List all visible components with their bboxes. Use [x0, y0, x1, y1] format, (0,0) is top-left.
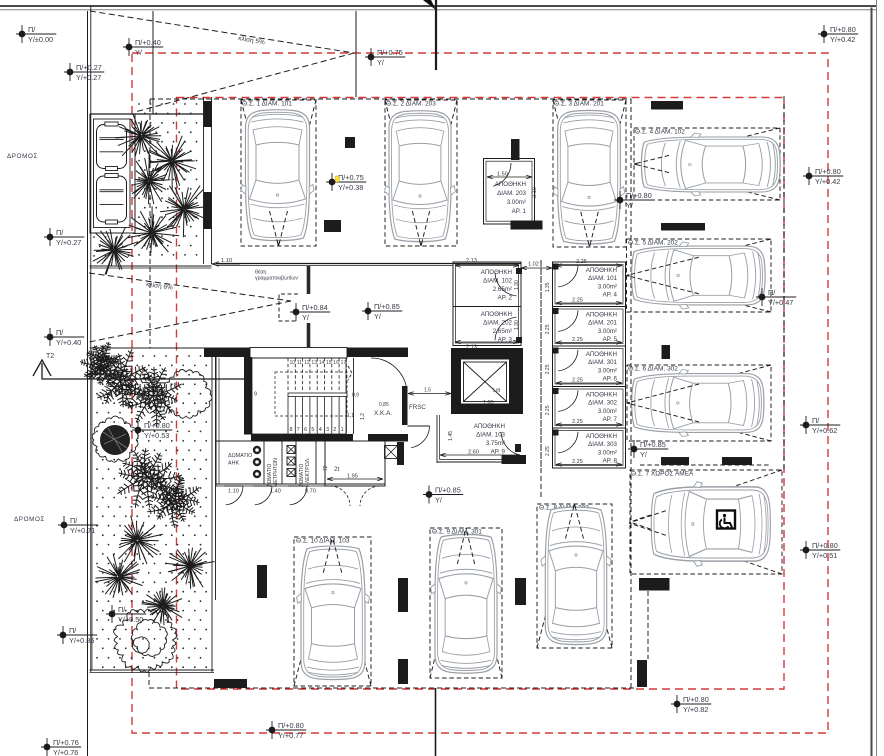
svg-text:ΑΠΟΘΗΚΗ: ΑΠΟΘΗΚΗ — [481, 269, 512, 276]
svg-text:ΑΡ. 2: ΑΡ. 2 — [498, 295, 513, 302]
svg-text:2t: 2t — [334, 466, 340, 473]
svg-text:ΔΙΑΜ. 203: ΔΙΑΜ. 203 — [497, 190, 526, 197]
svg-text:ΔΙΑΜ. 101: ΔΙΑΜ. 101 — [588, 275, 617, 282]
svg-text:1,2: 1,2 — [360, 413, 366, 420]
svg-text:0,9: 0,9 — [352, 393, 359, 399]
svg-text:1.30: 1.30 — [514, 280, 520, 290]
svg-text:Π/+0.80: Π/+0.80 — [683, 695, 709, 704]
svg-text:ΔΙΑΜ. 103: ΔΙΑΜ. 103 — [476, 432, 505, 439]
svg-text:2.25: 2.25 — [545, 405, 551, 415]
svg-text:2: 2 — [333, 427, 336, 433]
svg-text:11: 11 — [297, 360, 302, 366]
svg-text:2.25: 2.25 — [572, 378, 583, 384]
svg-text:1.45: 1.45 — [448, 431, 454, 441]
svg-text:Π/+0.80: Π/+0.80 — [144, 421, 170, 430]
svg-text:Y/+0.42: Y/+0.42 — [830, 35, 855, 44]
svg-text:Θ.Σ. 6 ΔΙΑΜ. 302: Θ.Σ. 6 ΔΙΑΜ. 302 — [628, 366, 678, 373]
svg-text:ΑΡ. 8: ΑΡ. 8 — [603, 458, 618, 465]
svg-text:ΑΗΚ: ΑΗΚ — [228, 461, 239, 467]
svg-text:Θ.Σ. 4 ΔΙΑΜ. 102: Θ.Σ. 4 ΔΙΑΜ. 102 — [635, 129, 685, 136]
svg-text:2.25: 2.25 — [572, 337, 583, 343]
svg-text:ΔΙΑΜ. 201: ΔΙΑΜ. 201 — [588, 320, 617, 327]
svg-text:ΗΛΕΚΤΡΟΛ.: ΗΛΕΚΤΡΟΛ. — [305, 457, 311, 487]
svg-text:Lift: Lift — [493, 388, 501, 394]
svg-text:Π/+0.80: Π/+0.80 — [626, 191, 652, 200]
svg-text:Π/+0.85: Π/+0.85 — [435, 485, 461, 494]
svg-text:ΑΡ. 6: ΑΡ. 6 — [603, 376, 618, 383]
svg-text:Y/: Y/ — [640, 450, 648, 459]
svg-text:3: 3 — [326, 427, 329, 433]
svg-text:4: 4 — [319, 427, 322, 433]
svg-text:X.K.A.: X.K.A. — [374, 410, 392, 417]
svg-text:ΑΠΟΘΗΚΗ: ΑΠΟΘΗΚΗ — [586, 392, 617, 399]
svg-text:5: 5 — [311, 427, 314, 433]
svg-text:2.13: 2.13 — [466, 345, 477, 351]
svg-text:Y/+0.42: Y/+0.42 — [815, 177, 840, 186]
svg-text:Π/+0.80: Π/+0.80 — [278, 721, 304, 730]
svg-text:Π/+0.40: Π/+0.40 — [135, 38, 161, 47]
svg-text:Y/+0.77: Y/+0.77 — [278, 731, 303, 740]
svg-text:ΑΠΟΘΗΚΗ: ΑΠΟΘΗΚΗ — [474, 423, 505, 430]
svg-text:Y/+0.53: Y/+0.53 — [144, 431, 169, 440]
svg-text:Θ.Σ. 5 ΔΙΑΜ. 202: Θ.Σ. 5 ΔΙΑΜ. 202 — [628, 240, 678, 247]
svg-text:3.00m²: 3.00m² — [598, 328, 617, 335]
svg-text:Y/+0.47: Y/+0.47 — [768, 298, 793, 307]
svg-text:3.00m²: 3.00m² — [598, 283, 617, 290]
svg-text:ΑΠΟΘΗΚΗ: ΑΠΟΘΗΚΗ — [586, 267, 617, 274]
svg-text:ΑΡ. 5: ΑΡ. 5 — [603, 336, 618, 343]
svg-text:ΑΠΟΘΗΚΗ: ΑΠΟΘΗΚΗ — [481, 311, 512, 318]
svg-text:Π/+0.80: Π/+0.80 — [815, 167, 841, 176]
svg-text:1.50: 1.50 — [497, 172, 508, 178]
svg-text:3.00m²: 3.00m² — [598, 449, 617, 456]
svg-text:Π/+0.75: Π/+0.75 — [377, 48, 403, 57]
svg-text:2.25: 2.25 — [545, 324, 551, 334]
svg-text:3.00m²: 3.00m² — [598, 408, 617, 415]
svg-text:0,85: 0,85 — [379, 402, 389, 408]
svg-text:Π/+0.75: Π/+0.75 — [338, 173, 364, 182]
svg-text:ΔΙΑΜ. 301: ΔΙΑΜ. 301 — [588, 359, 617, 366]
svg-text:2.60: 2.60 — [468, 450, 479, 456]
svg-text:3.75m²: 3.75m² — [486, 440, 505, 447]
svg-text:1,5: 1,5 — [424, 388, 431, 394]
svg-text:Y/+0.62: Y/+0.62 — [812, 426, 837, 435]
svg-text:Π/+0.27: Π/+0.27 — [76, 63, 102, 72]
svg-text:Π/+0.84: Π/+0.84 — [302, 303, 328, 312]
svg-text:Θ.Σ. 3 ΔΙΑΜ. 201: Θ.Σ. 3 ΔΙΑΜ. 201 — [554, 101, 604, 108]
svg-text:1.95: 1.95 — [347, 474, 358, 480]
svg-text:13: 13 — [311, 360, 317, 366]
svg-text:ΑΠΟΘΗΚΗ: ΑΠΟΘΗΚΗ — [586, 312, 617, 319]
svg-text:ΑΡ. 9: ΑΡ. 9 — [491, 449, 506, 456]
svg-text:2.25: 2.25 — [572, 419, 583, 425]
svg-text:ΑΡ. 3: ΑΡ. 3 — [498, 337, 513, 344]
svg-text:Y/+0.38: Y/+0.38 — [338, 183, 363, 192]
svg-text:14: 14 — [319, 360, 325, 366]
svg-text:2.25: 2.25 — [576, 259, 587, 265]
svg-text:Y/+0.76: Y/+0.76 — [53, 748, 78, 756]
svg-text:7: 7 — [297, 427, 300, 433]
svg-text:Y/: Y/ — [302, 313, 310, 322]
svg-text:ΔΙΑΜ. 202: ΔΙΑΜ. 202 — [483, 320, 512, 327]
svg-text:Y/: Y/ — [377, 58, 385, 67]
svg-text:ΔΙΑΜ. 302: ΔΙΑΜ. 302 — [588, 400, 617, 407]
svg-text:Y/+0.71: Y/+0.71 — [70, 526, 95, 535]
svg-text:8: 8 — [290, 427, 293, 433]
svg-text:Π/: Π/ — [812, 416, 820, 425]
svg-text:ΑΡ. 1: ΑΡ. 1 — [512, 208, 527, 215]
svg-text:9: 9 — [254, 392, 257, 398]
svg-text:ΑΡ. 7: ΑΡ. 7 — [603, 416, 618, 423]
svg-text:T2: T2 — [46, 353, 54, 360]
svg-text:Π/: Π/ — [768, 288, 776, 297]
svg-text:16: 16 — [333, 360, 339, 366]
svg-text:6: 6 — [304, 427, 307, 433]
svg-text:12: 12 — [304, 360, 310, 366]
svg-text:Π/: Π/ — [28, 25, 36, 34]
svg-text:Π/: Π/ — [69, 626, 77, 635]
svg-text:Θ.Σ. 1 ΔΙΑΜ. 101: Θ.Σ. 1 ΔΙΑΜ. 101 — [242, 101, 292, 108]
svg-text:γραμματοκιβωτίων: γραμματοκιβωτίων — [255, 276, 298, 282]
svg-text:ΑΠΟΘΗΚΗ: ΑΠΟΘΗΚΗ — [586, 351, 617, 358]
svg-text:Π/+0.76: Π/+0.76 — [53, 738, 79, 747]
svg-text:2.25: 2.25 — [545, 364, 551, 374]
svg-text:Y/: Y/ — [626, 201, 634, 210]
svg-text:ΔΙΑΜ. 303: ΔΙΑΜ. 303 — [588, 441, 617, 448]
svg-text:Π/+0.85: Π/+0.85 — [640, 440, 666, 449]
svg-text:Π/: Π/ — [56, 328, 64, 337]
svg-text:Y/±0.00: Y/±0.00 — [28, 35, 53, 44]
svg-text:Θ.Σ. 2 ΔΙΑΜ. 203: Θ.Σ. 2 ΔΙΑΜ. 203 — [386, 101, 436, 108]
svg-text:1,1: 1,1 — [347, 413, 354, 419]
svg-text:Y/+0.40: Y/+0.40 — [56, 338, 81, 347]
svg-text:Y/: Y/ — [135, 48, 143, 57]
svg-text:1.35: 1.35 — [545, 282, 551, 292]
svg-text:Y/+0.27: Y/+0.27 — [76, 73, 101, 82]
svg-text:Π/: Π/ — [118, 605, 126, 614]
svg-text:17: 17 — [341, 360, 347, 366]
svg-text:ΜΕΤΡΗΤΩΝ: ΜΕΤΡΗΤΩΝ — [273, 458, 279, 487]
svg-text:1.80: 1.80 — [483, 400, 494, 406]
svg-text:1: 1 — [341, 427, 344, 433]
svg-text:2.25: 2.25 — [572, 459, 583, 465]
svg-text:1.30: 1.30 — [514, 320, 520, 330]
svg-text:Y/: Y/ — [435, 496, 443, 505]
svg-text:ΔΡΟΜΟΣ: ΔΡΟΜΟΣ — [14, 516, 45, 523]
svg-text:ΑΠΟΘΗΚΗ: ΑΠΟΘΗΚΗ — [586, 433, 617, 440]
svg-text:ΑΠΟΘΗΚΗ: ΑΠΟΘΗΚΗ — [495, 181, 526, 188]
svg-text:Y/+0.82: Y/+0.82 — [683, 705, 708, 714]
svg-text:1.10: 1.10 — [228, 489, 239, 495]
svg-text:Y/+0.50: Y/+0.50 — [118, 615, 143, 624]
svg-text:Θ.Σ. 10 ΔΙΑΜ. 103: Θ.Σ. 10 ΔΙΑΜ. 103 — [296, 538, 350, 545]
svg-text:Y/+0.86: Y/+0.86 — [69, 636, 94, 645]
svg-text:2.10: 2.10 — [532, 187, 538, 198]
svg-text:15: 15 — [326, 360, 332, 366]
svg-text:Y/+0.27: Y/+0.27 — [56, 238, 81, 247]
svg-text:2.25: 2.25 — [545, 446, 551, 456]
svg-text:3.00m²: 3.00m² — [507, 199, 526, 206]
svg-text:1.02: 1.02 — [528, 262, 539, 268]
svg-text:2.25: 2.25 — [572, 298, 583, 304]
svg-text:Π/: Π/ — [70, 516, 78, 525]
svg-text:Y/+0.51: Y/+0.51 — [812, 551, 837, 560]
svg-text:Π/+0.80: Π/+0.80 — [812, 541, 838, 550]
svg-text:3.00m²: 3.00m² — [598, 367, 617, 374]
svg-text:θέση: θέση — [255, 269, 266, 276]
svg-text:72: 72 — [323, 465, 329, 471]
svg-text:Y/: Y/ — [374, 312, 382, 321]
svg-text:Π/: Π/ — [56, 228, 64, 237]
svg-text:10: 10 — [290, 360, 296, 366]
svg-text:Π/+0.80: Π/+0.80 — [830, 25, 856, 34]
svg-text:2.13: 2.13 — [466, 258, 477, 264]
svg-text:ΔΡΟΜΟΣ: ΔΡΟΜΟΣ — [7, 153, 38, 160]
svg-text:ΔΩΜΑΤΙΟ: ΔΩΜΑΤΙΟ — [228, 453, 252, 459]
svg-text:ΑΡ. 4: ΑΡ. 4 — [603, 292, 618, 299]
svg-text:Π/+0.85: Π/+0.85 — [374, 302, 400, 311]
svg-text:Θ.Σ. 7 ΧΩΡΟΣ ΑΜΕΑ: Θ.Σ. 7 ΧΩΡΟΣ ΑΜΕΑ — [631, 471, 694, 478]
svg-text:FRSC: FRSC — [409, 404, 426, 411]
